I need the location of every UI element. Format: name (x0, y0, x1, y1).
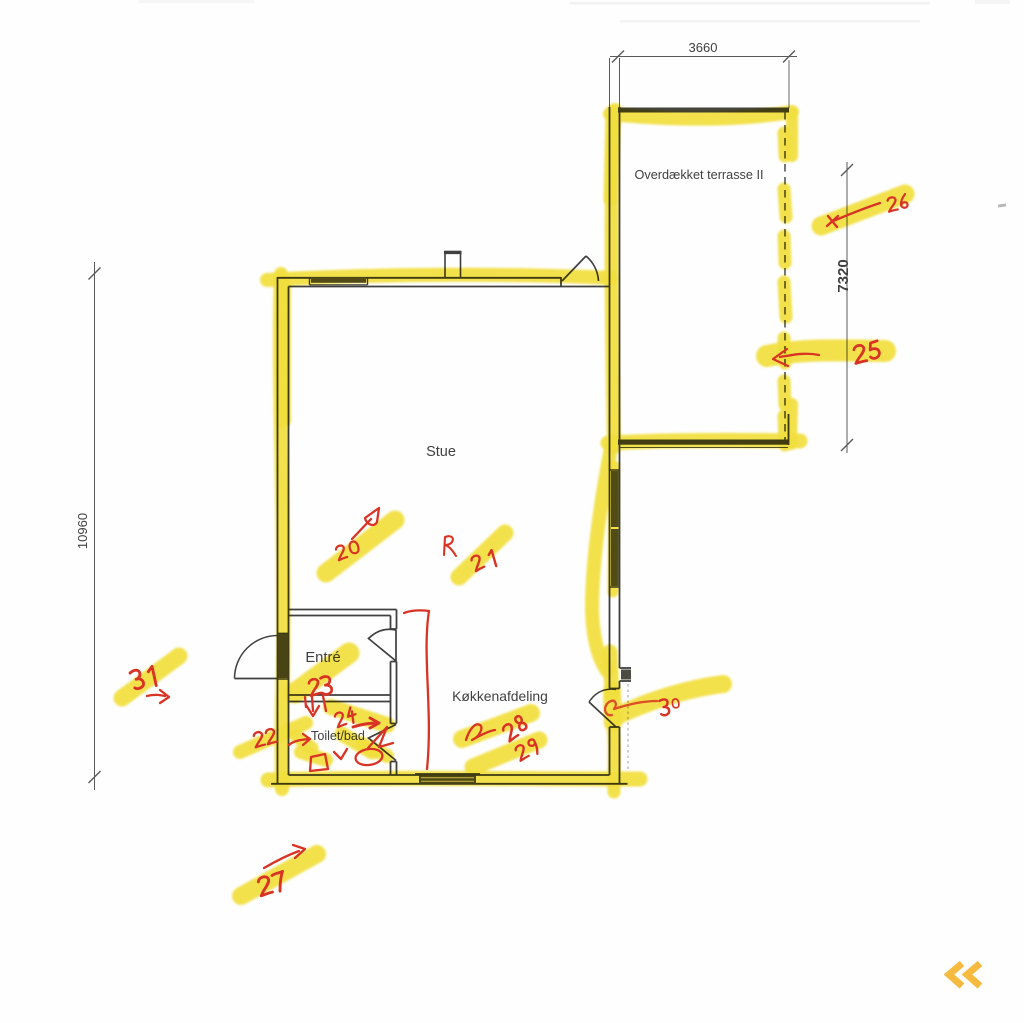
svg-text:Stue: Stue (426, 444, 456, 460)
svg-text:Overdækket terrasse II: Overdækket terrasse II (634, 168, 763, 182)
svg-text:3660: 3660 (689, 40, 718, 55)
svg-text:7320: 7320 (835, 259, 852, 292)
svg-text:Køkkenafdeling: Køkkenafdeling (452, 688, 548, 704)
svg-text:10960: 10960 (75, 513, 90, 549)
